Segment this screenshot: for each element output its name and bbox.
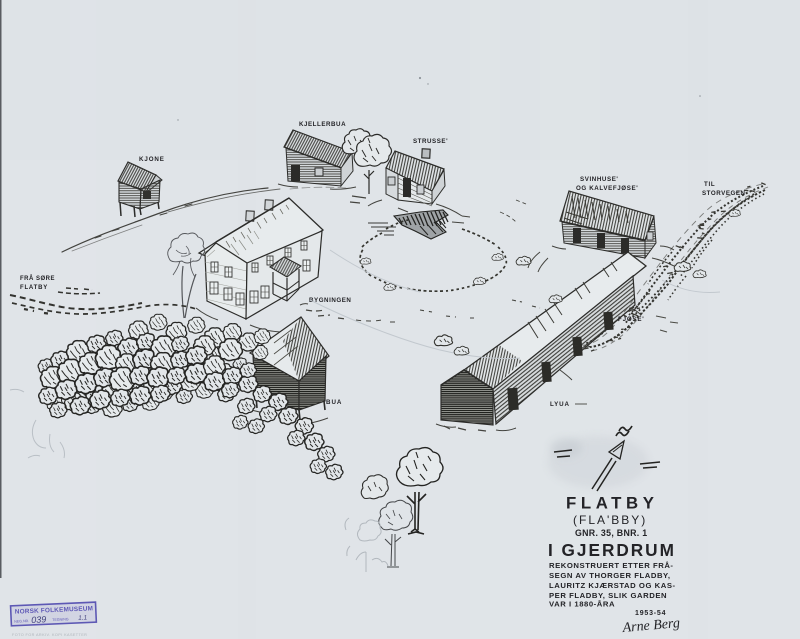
svg-text:OG KALVEFJØSE': OG KALVEFJØSE' (576, 185, 638, 192)
svg-text:FLATBY: FLATBY (566, 494, 659, 513)
svg-text:FJØSE': FJØSE' (618, 316, 645, 323)
svg-text:NEG.NR.: NEG.NR. (14, 619, 29, 624)
svg-text:FOTO FOR ARKIV. KOPI KASETTER: FOTO FOR ARKIV. KOPI KASETTER (12, 633, 87, 637)
svg-text:GNR. 35, BNR. 1: GNR. 35, BNR. 1 (575, 528, 647, 538)
svg-text:TEGNING: TEGNING (52, 617, 69, 622)
svg-text:BUA: BUA (326, 399, 342, 406)
svg-text:1.1: 1.1 (78, 614, 88, 621)
svg-text:LYUA: LYUA (550, 401, 570, 408)
svg-text:KJELLERBUA: KJELLERBUA (299, 121, 346, 128)
svg-text:I GJERDRUM: I GJERDRUM (548, 540, 676, 560)
svg-text:SVINHUSE': SVINHUSE' (580, 176, 619, 183)
svg-text:FRÅ SØRE: FRÅ SØRE (20, 275, 55, 282)
svg-text:039: 039 (31, 614, 46, 625)
svg-text:STORVEGEN: STORVEGEN (702, 190, 746, 197)
svg-text:KJONE: KJONE (139, 156, 165, 163)
svg-text:STRUSSE': STRUSSE' (413, 138, 448, 145)
svg-text:(FLA'BBY): (FLA'BBY) (573, 513, 647, 527)
svg-text:FLATBY: FLATBY (20, 285, 48, 291)
svg-text:SEGN AV THORGER FLADBY,: SEGN AV THORGER FLADBY, (549, 571, 671, 580)
svg-text:LAURITZ KJÆRSTAD OG KAS-: LAURITZ KJÆRSTAD OG KAS- (549, 581, 676, 590)
svg-text:REKONSTRUERT ETTER FRÅ-: REKONSTRUERT ETTER FRÅ- (549, 561, 674, 570)
svg-text:TIL: TIL (704, 181, 715, 188)
svg-text:1953-54: 1953-54 (635, 610, 666, 617)
svg-text:VAR I 1880-ÅRA: VAR I 1880-ÅRA (549, 600, 615, 609)
